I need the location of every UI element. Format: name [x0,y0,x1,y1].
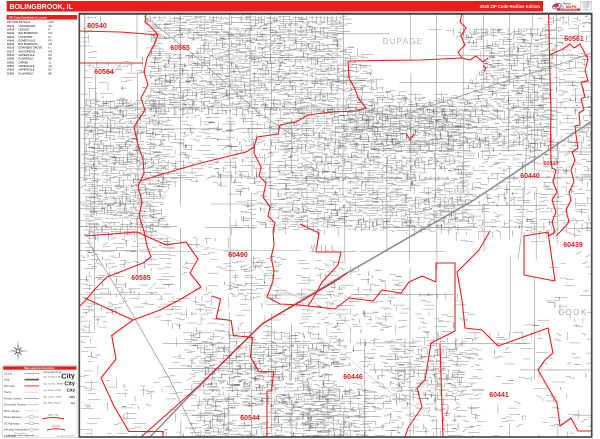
svg-text:US Highways: US Highways [4,421,20,425]
svg-text:DOWNERS GROVE: DOWNERS GROVE [19,46,43,50]
svg-text:CHANNAHON: CHANNAHON [19,24,36,28]
svg-text:60564: 60564 [94,69,114,76]
svg-text:Bolingbrook: Bolingbrook [424,176,450,182]
svg-text:LOC: LOC [49,20,54,24]
svg-text:PLAINFIELD: PLAINFIELD [19,57,34,61]
svg-text:sales: sales [585,8,589,10]
svg-text:A6: A6 [49,24,53,28]
svg-text:State / City: State / City [48,414,60,417]
svg-text:60585: 60585 [7,71,15,75]
svg-text:Interstate: Interstate [51,425,61,428]
svg-text:60410: 60410 [7,24,15,28]
svg-text:60561: 60561 [7,60,15,64]
svg-text:60540: 60540 [7,53,15,57]
svg-text:A2: A2 [49,64,53,68]
svg-text:Cities/Label Texts: Cities/Label Texts [43,371,62,374]
svg-text:State Highways: State Highways [4,415,23,419]
svg-text:E2: E2 [49,68,53,72]
svg-text:60544: 60544 [7,57,15,61]
svg-text:Scale in Miles: Scale in Miles [14,433,26,435]
svg-text:ZIP Code: ZIP Code [7,20,18,24]
svg-text:NAPERVILLE: NAPERVILLE [19,68,35,72]
svg-text:60440: 60440 [520,173,540,180]
svg-text:City: 5,000 - 9,999: City: 5,000 - 9,999 [43,389,62,392]
svg-text:City: 10,000 - 49,999: City: 10,000 - 49,999 [43,383,64,386]
svg-text:City: City [69,395,75,399]
svg-text:ROMEOVILLE: ROMEOVILLE [19,38,36,42]
svg-text:BOLINGBROOK, IL: BOLINGBROOK, IL [10,4,74,11]
svg-text:City: City [66,387,75,393]
svg-text:B6: B6 [49,57,53,61]
svg-text:60564: 60564 [7,64,15,68]
svg-text:ZIP Code Subdivided Locator: ZIP Code Subdivided Locator [9,15,49,19]
svg-text:60544: 60544 [240,415,260,422]
svg-text:60441: 60441 [7,35,15,39]
svg-text:60516: 60516 [7,46,15,50]
svg-text:NAPERVILLE: NAPERVILLE [19,53,35,57]
svg-text:LOCKPORT: LOCKPORT [19,35,34,39]
svg-text:WILL: WILL [311,244,338,253]
svg-text:State: State [4,378,11,382]
svg-text:60517: 60517 [543,161,558,167]
svg-text:B5: B5 [49,71,53,75]
svg-text:60585: 60585 [131,275,151,282]
svg-text:60517: 60517 [7,49,15,53]
svg-text:WOODRIDGE: WOODRIDGE [19,49,36,53]
svg-text:60490: 60490 [228,252,248,259]
svg-text:H3: H3 [49,49,53,53]
svg-text:60446: 60446 [343,374,363,381]
svg-text:Copyright MarketMAPS: Copyright MarketMAPS [56,435,76,438]
svg-text:2020 ZIP Code Redline Edition: 2020 ZIP Code Redline Edition [480,4,541,9]
svg-text:Secondary Streets: Secondary Streets [4,403,26,407]
svg-text:DISCOVER THE WORLD: DISCOVER THE WORLD [560,9,578,11]
svg-text:ZIP Code: ZIP Code [4,384,15,388]
svg-text:COOK: COOK [558,308,588,317]
svg-text:City: City [61,371,75,381]
svg-text:PLAINFIELD: PLAINFIELD [19,71,34,75]
svg-text:BOLINGBROOK: BOLINGBROOK [19,31,38,35]
svg-text:Map Legend & Information: Map Legend & Information [24,367,55,370]
svg-text:ZIP Name: ZIP Name [19,20,31,24]
svg-text:MAPS: MAPS [566,5,577,9]
svg-text:60441: 60441 [489,392,509,399]
svg-text:Minor Streets: Minor Streets [4,409,20,413]
svg-text:DUPAGE: DUPAGE [383,37,423,46]
svg-text:60565: 60565 [7,68,15,72]
svg-text:R: R [49,28,51,32]
svg-text:60540: 60540 [87,23,107,30]
svg-text:G3: G3 [49,31,53,35]
svg-text:Tracts: Tracts [4,390,12,394]
svg-text:Primary Streets: Primary Streets [4,396,23,400]
svg-text:City: 999 or Fewer: City: 999 or Fewer [43,402,61,405]
svg-text:60490: 60490 [7,42,15,46]
svg-text:60561: 60561 [564,36,584,43]
svg-text:60439: 60439 [563,242,583,249]
svg-text:60446: 60446 [7,38,15,42]
svg-text:BOLINGBROOK: BOLINGBROOK [19,42,38,46]
svg-text:Interstate Highways: Interstate Highways [4,428,27,432]
svg-text:DARIEN: DARIEN [19,60,29,64]
svg-text:County: County [4,371,13,375]
svg-text:60565: 60565 [170,45,190,52]
svg-text:D1: D1 [49,53,53,57]
svg-text:60440: 60440 [7,31,15,35]
svg-text:LEMONT: LEMONT [19,28,30,32]
svg-text:C5: C5 [49,42,53,46]
svg-text:City: 1,000 - 4,999: City: 1,000 - 4,999 [43,396,62,399]
svg-text:NAPERVILLE: NAPERVILLE [19,64,35,68]
svg-text:60439: 60439 [7,28,15,32]
